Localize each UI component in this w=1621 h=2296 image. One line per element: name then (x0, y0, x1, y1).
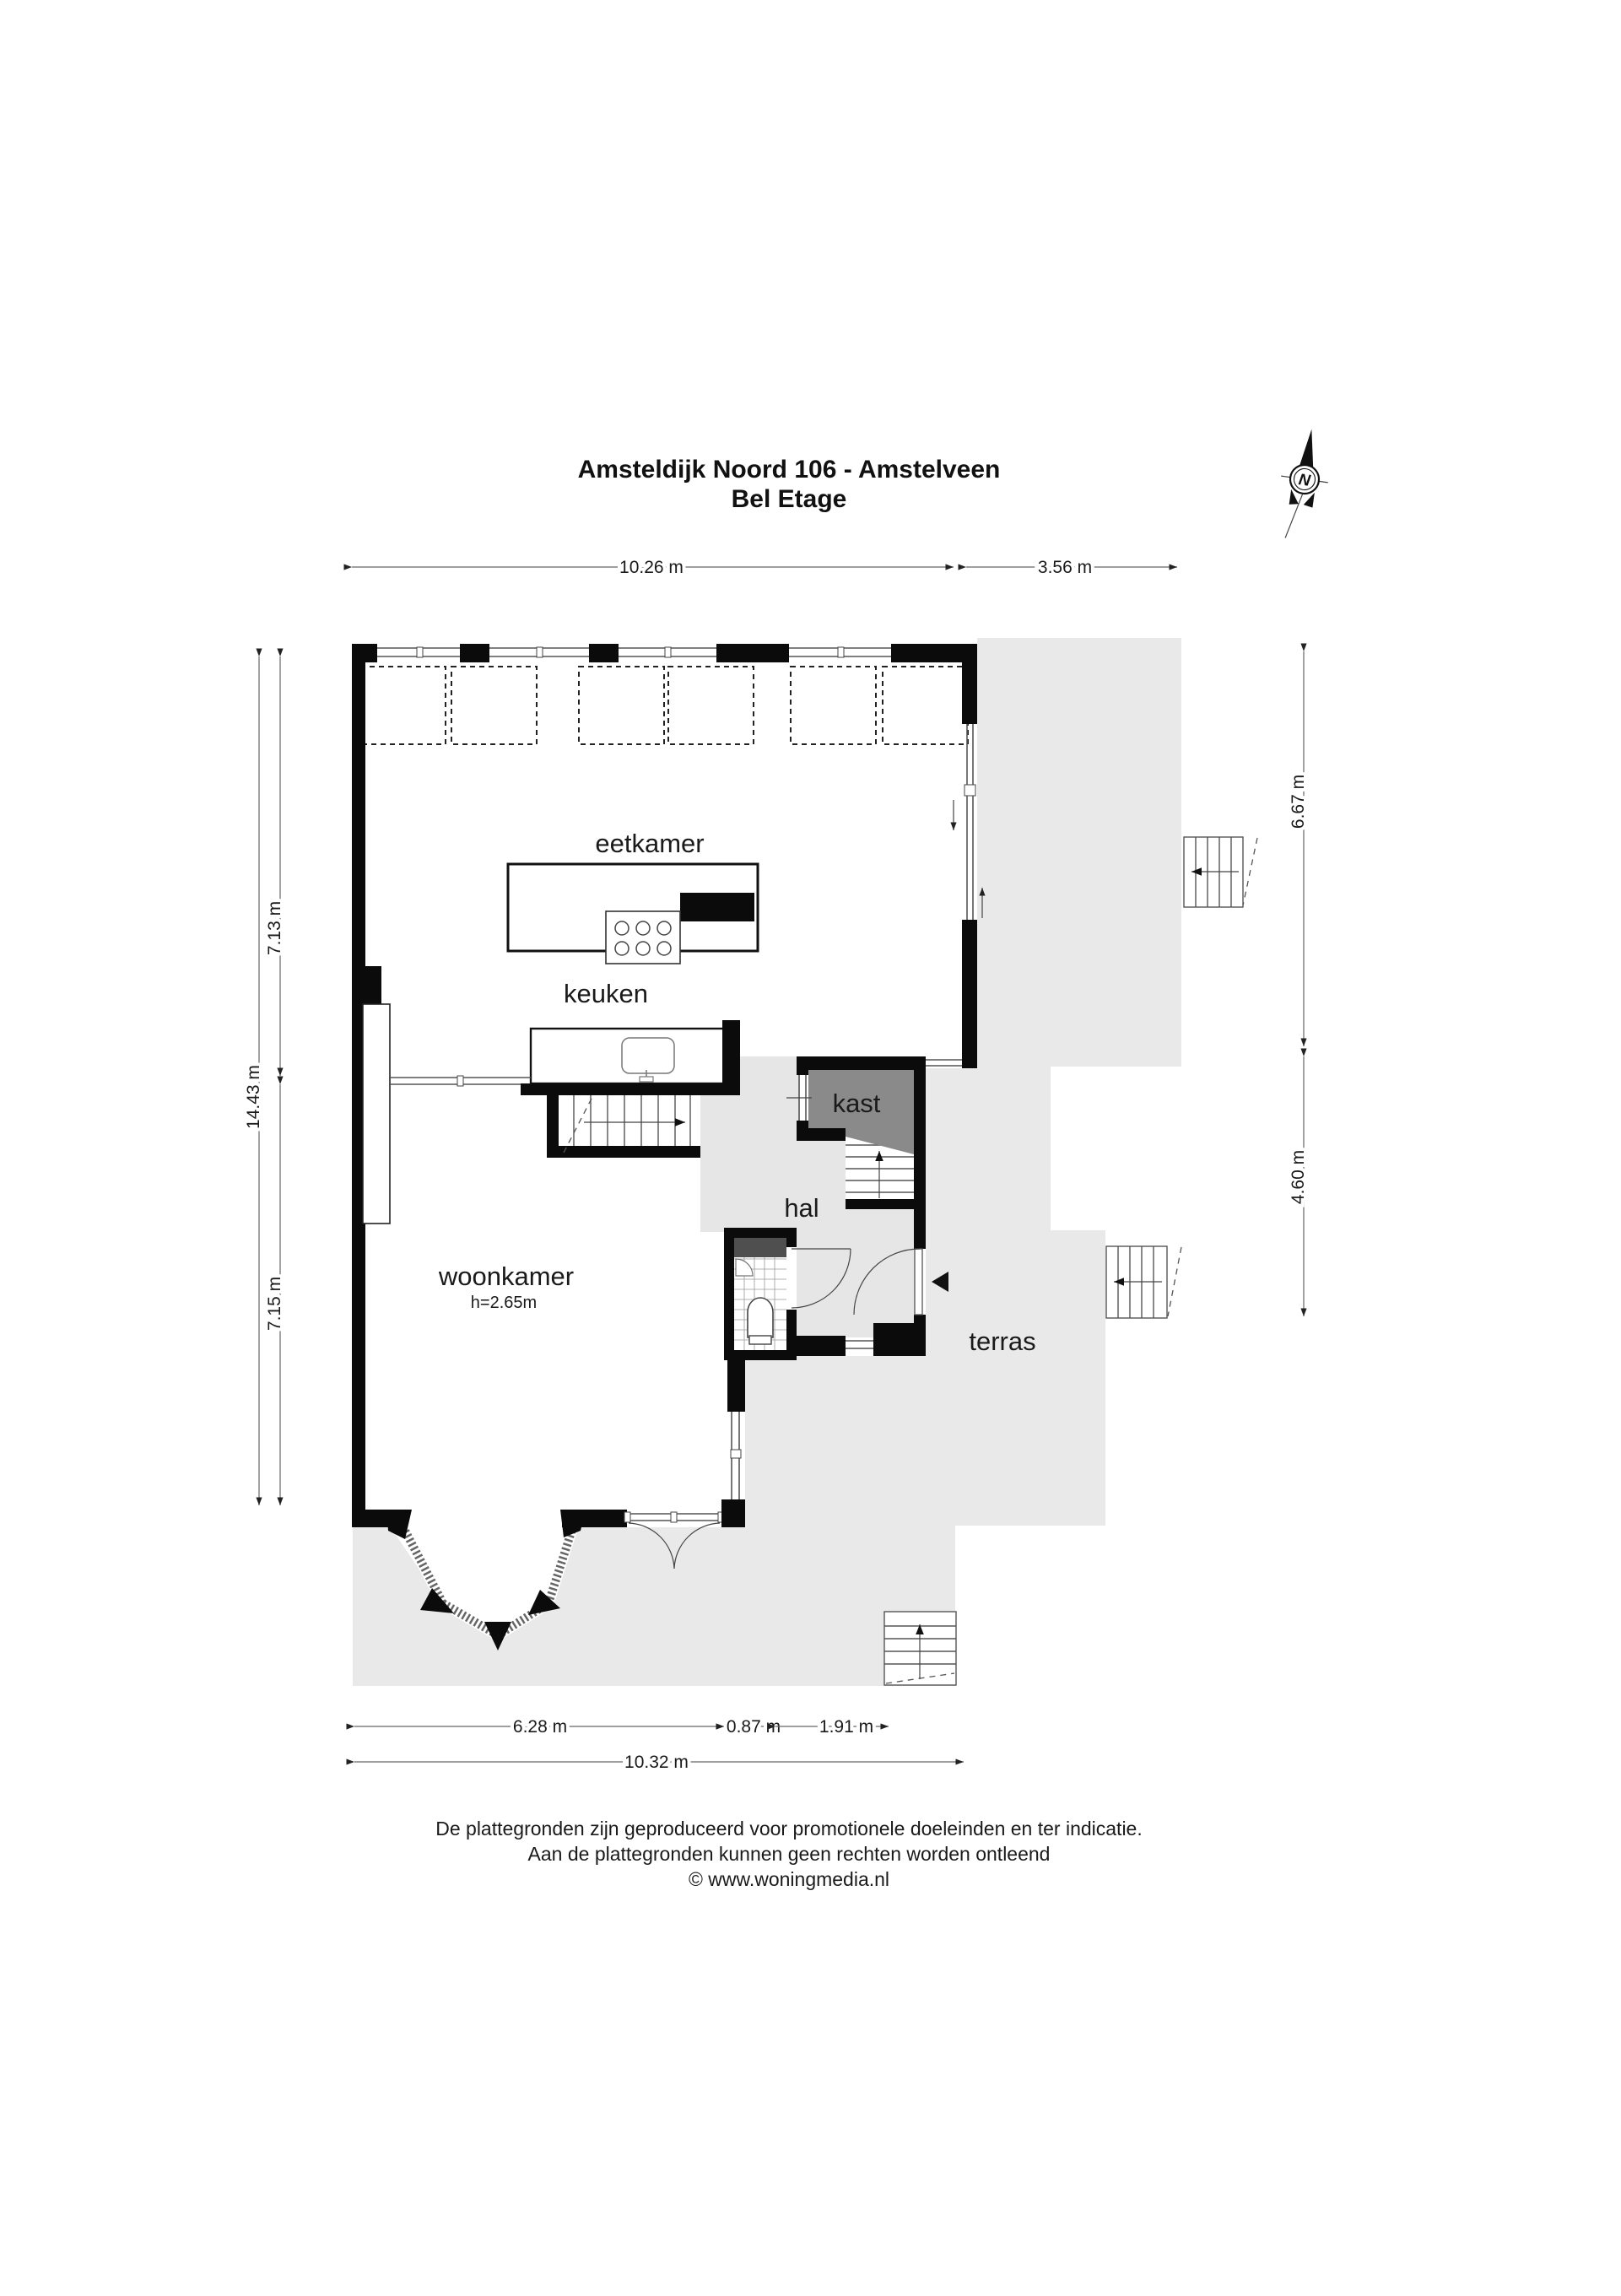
dimension-left-lower: 7.15 m (265, 1277, 284, 1331)
room-label-keuken: keuken (564, 979, 648, 1008)
dimension-bottom-total: 10.32 m (624, 1753, 689, 1772)
stairs-exterior-lower-right (1106, 1246, 1181, 1318)
room-label-woonkamer-height: h=2.65m (471, 1294, 537, 1312)
dimension-right-lower: 4.60 m (1289, 1150, 1308, 1204)
dimension-bottom-right: 1.91 m (819, 1717, 873, 1737)
chimney-breast (363, 1004, 390, 1224)
disclaimer-line-2: Aan de plattegronden kunnen geen rechten… (528, 1843, 1051, 1865)
dimension-left-outer: 14.43 m (244, 1065, 263, 1129)
disclaimer-line-3: © www.woningmedia.nl (689, 1868, 889, 1890)
room-label-kast: kast (833, 1089, 881, 1118)
disclaimer: De plattegronden zijn geproduceerd voor … (435, 1818, 1143, 1890)
room-label-terras: terras (969, 1326, 1035, 1356)
dimension-right: 6.67 m 4.60 m (1289, 651, 1308, 1316)
room-label-eetkamer: eetkamer (595, 829, 704, 858)
room-label-woonkamer: woonkamer (438, 1261, 574, 1291)
floor-plan-svg: Amsteldijk Noord 106 - Amstelveen Bel Et… (0, 0, 1621, 2292)
dimension-right-upper: 6.67 m (1289, 775, 1308, 829)
dimension-top-right: 3.56 m (1038, 558, 1092, 577)
title-line-2: Bel Etage (732, 485, 847, 513)
toilet-icon (748, 1298, 773, 1344)
title-line-1: Amsteldijk Noord 106 - Amstelveen (578, 456, 1001, 484)
cooktop-icon (606, 911, 680, 964)
dimension-bottom-mid: 0.87 m (727, 1717, 781, 1737)
room-label-hal: hal (784, 1193, 819, 1223)
dimension-left-upper: 7.13 m (265, 901, 284, 955)
toilet-cabinet (734, 1236, 786, 1257)
disclaimer-line-1: De plattegronden zijn geproduceerd voor … (435, 1818, 1143, 1840)
floor-plan: Amsteldijk Noord 106 - Amstelveen Bel Et… (0, 0, 1621, 2292)
north-compass-icon: N (1272, 426, 1335, 543)
stairs-interior-down (547, 1095, 700, 1158)
stairs-exterior-upper-right (1184, 837, 1257, 907)
dimension-top: 10.26 m 3.56 m (352, 558, 1177, 577)
page: { "title": { "line1": "Amsteldijk Noord … (0, 0, 1621, 2292)
page-title: Amsteldijk Noord 106 - Amstelveen Bel Et… (578, 456, 1001, 513)
dimension-bottom: 6.28 m 0.87 m 1.91 m 10.32 m (354, 1717, 964, 1772)
dimension-top-main: 10.26 m (619, 558, 684, 577)
stairs-exterior-bottom (884, 1612, 956, 1685)
dimension-bottom-left: 6.28 m (513, 1717, 567, 1737)
island-dark-unit (680, 893, 754, 921)
dimension-left: 14.43 m 7.13 m 7.15 m (244, 656, 284, 1505)
